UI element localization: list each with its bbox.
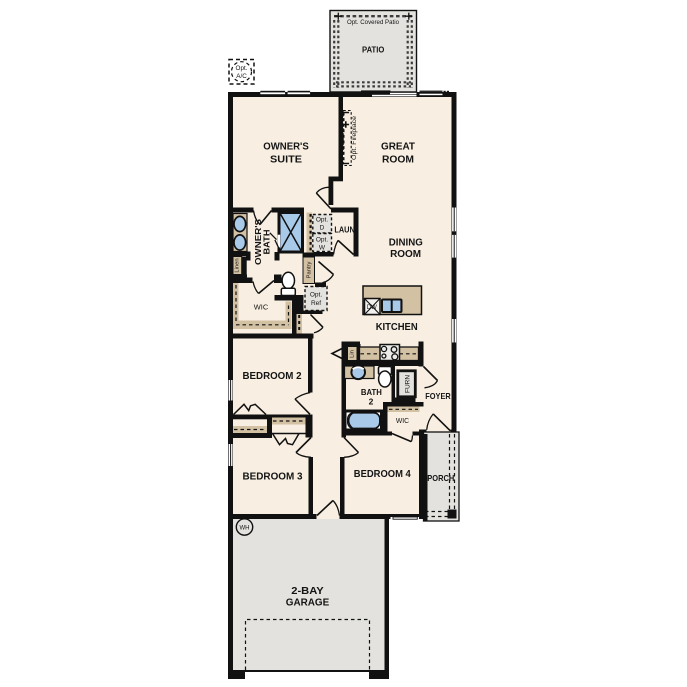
svg-text:WIC: WIC [254,303,269,312]
svg-text:Opt. Fireplace: Opt. Fireplace [351,115,358,160]
svg-text:Ref: Ref [311,300,321,307]
svg-text:LAUN: LAUN [334,225,355,235]
svg-text:Opt. Covered Patio: Opt. Covered Patio [347,19,399,26]
svg-text:PORCH: PORCH [427,473,454,483]
svg-text:PATIO: PATIO [362,46,384,55]
svg-text:Opt.: Opt. [310,292,322,299]
svg-text:2: 2 [369,397,374,407]
svg-text:DW: DW [367,305,377,311]
svg-text:ROOM: ROOM [382,155,414,166]
svg-text:GREAT: GREAT [381,142,415,153]
svg-text:FOYER: FOYER [425,391,451,401]
svg-text:SUITE: SUITE [270,155,302,166]
svg-text:A/C: A/C [236,73,247,80]
svg-text:BEDROOM 2: BEDROOM 2 [243,371,302,382]
svg-text:W: W [319,245,326,252]
svg-text:Opt.: Opt. [316,237,328,244]
svg-text:Pantry: Pantry [307,262,313,279]
svg-text:ROOM: ROOM [390,249,421,260]
svg-text:Opt.: Opt. [236,65,248,72]
svg-text:WIC: WIC [396,416,410,425]
svg-text:OWNER'S: OWNER'S [263,142,309,153]
svg-text:DINING: DINING [389,238,423,249]
svg-text:Linen: Linen [235,258,241,272]
svg-text:Lin: Lin [350,350,356,358]
svg-text:2-BAY: 2-BAY [291,586,324,597]
svg-text:FURN: FURN [405,375,412,393]
svg-text:WH: WH [240,526,250,532]
svg-text:BEDROOM 4: BEDROOM 4 [354,469,411,480]
svg-text:BEDROOM 3: BEDROOM 3 [243,472,303,483]
svg-text:D: D [320,225,325,232]
svg-text:KITCHEN: KITCHEN [376,322,418,333]
svg-text:GARAGE: GARAGE [286,598,330,609]
svg-text:Opt.: Opt. [316,217,328,224]
